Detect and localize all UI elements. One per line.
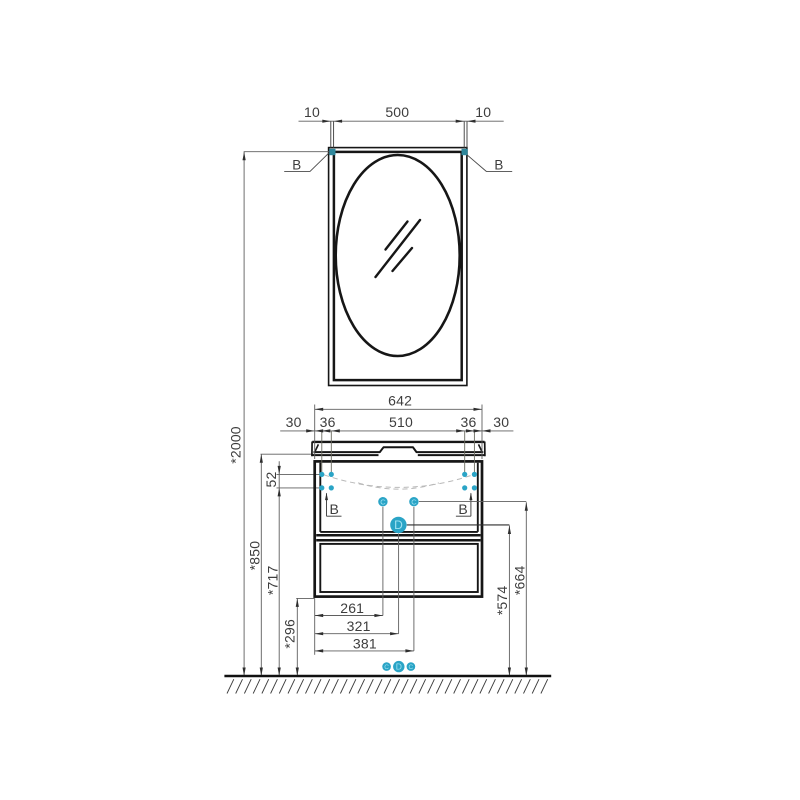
svg-text:381: 381 [353, 635, 377, 651]
svg-text:B: B [494, 158, 503, 173]
svg-text:*717: *717 [264, 565, 280, 595]
svg-text:B: B [330, 501, 340, 517]
svg-text:500: 500 [385, 104, 409, 120]
svg-text:C: C [380, 497, 386, 506]
svg-text:*850: *850 [246, 541, 262, 571]
svg-text:D: D [394, 518, 403, 532]
svg-text:36: 36 [320, 414, 336, 430]
svg-text:*664: *664 [512, 565, 528, 595]
svg-text:D: D [396, 662, 402, 672]
svg-text:642: 642 [388, 393, 412, 409]
svg-text:C: C [411, 497, 417, 506]
svg-text:30: 30 [493, 414, 509, 430]
svg-text:B: B [458, 501, 468, 517]
svg-text:B: B [292, 158, 301, 173]
svg-text:*2000: *2000 [227, 426, 243, 464]
svg-text:C: C [409, 664, 414, 671]
svg-text:*574: *574 [494, 586, 510, 616]
svg-text:36: 36 [461, 414, 477, 430]
svg-text:C: C [384, 664, 389, 671]
svg-text:52: 52 [263, 472, 279, 488]
svg-text:*296: *296 [282, 619, 298, 649]
svg-text:10: 10 [475, 104, 491, 120]
svg-text:321: 321 [347, 618, 371, 634]
svg-text:30: 30 [286, 414, 302, 430]
svg-text:10: 10 [304, 104, 320, 120]
svg-text:261: 261 [340, 600, 364, 616]
svg-text:510: 510 [389, 414, 413, 430]
